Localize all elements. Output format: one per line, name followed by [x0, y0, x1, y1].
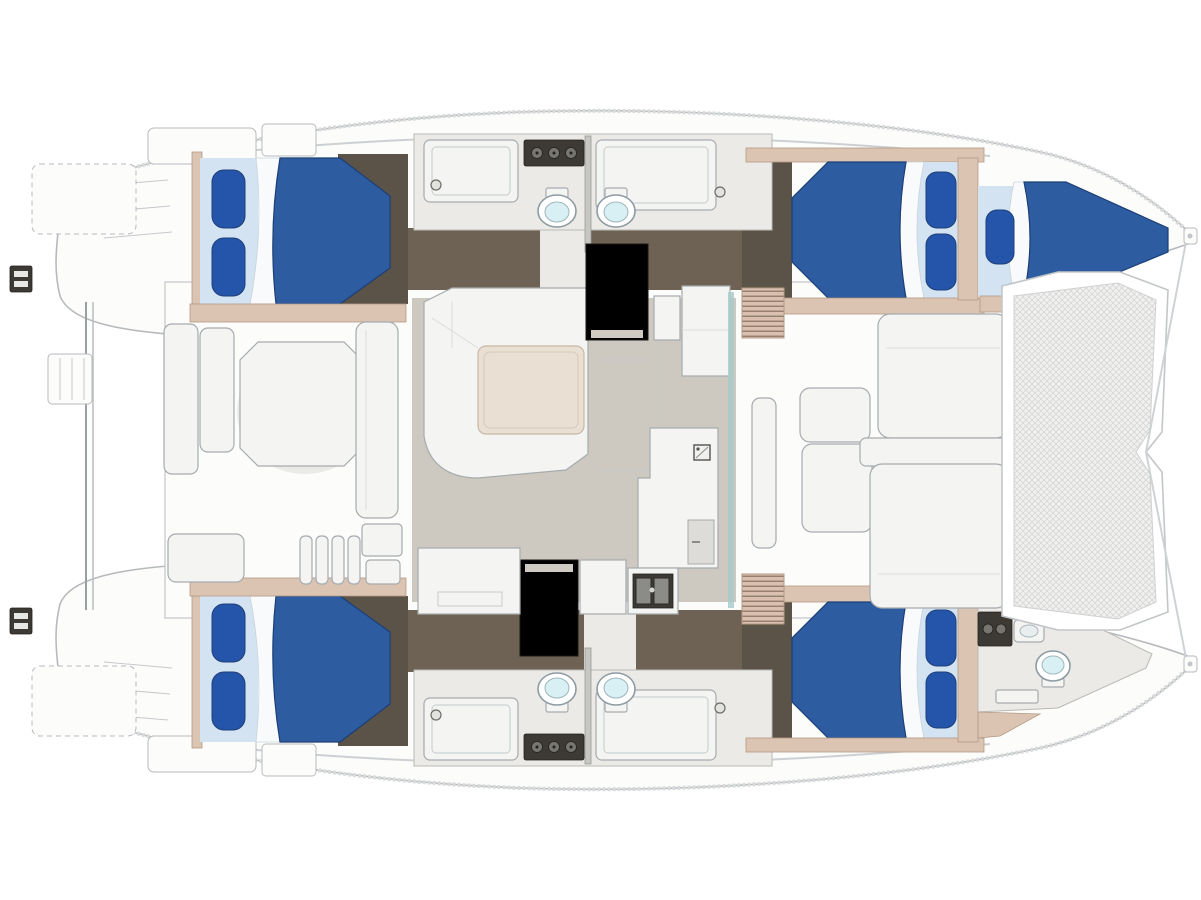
- swim-ladder: [48, 354, 92, 404]
- shower-drain: [431, 180, 441, 190]
- nav-cabinet: [682, 286, 730, 376]
- forward-seat-side: [800, 388, 870, 442]
- port-corridor-doorway: [540, 228, 586, 290]
- forward-cockpit-table: [752, 398, 776, 548]
- bow-trampoline: [1002, 228, 1197, 672]
- pillow: [926, 172, 956, 228]
- bow-fitting-port: [1184, 228, 1197, 244]
- starboard-swim-platform: [32, 666, 136, 736]
- dinette: [424, 288, 588, 478]
- starboard-hull-stairs: [520, 560, 578, 656]
- cabin-shelf: [746, 148, 984, 162]
- vanity-sinks: [524, 140, 584, 166]
- forward-side-steps-starboard: [742, 574, 784, 624]
- bow-head-shelf: [996, 690, 1038, 703]
- pillow: [212, 672, 245, 730]
- shower-drain: [431, 710, 441, 720]
- trampoline-net: [1014, 283, 1156, 619]
- galley-aft-counter: [418, 548, 520, 614]
- double-berth-spread: [792, 602, 906, 738]
- forward-bench-center: [860, 438, 1008, 466]
- galley-counter-landing: [580, 560, 626, 614]
- forward-bench-port: [878, 314, 1008, 438]
- pillow: [212, 238, 245, 296]
- pillow: [926, 672, 956, 728]
- head-divider-wall: [585, 648, 591, 764]
- starboard-corridor-doorway: [584, 610, 636, 672]
- cockpit-bench-right: [356, 322, 398, 518]
- bow-fitting-starboard: [1184, 656, 1197, 672]
- vanity-sinks: [524, 734, 584, 760]
- forepeak-bulkhead: [958, 600, 978, 742]
- salon: [412, 244, 736, 656]
- shower-aft: [424, 698, 518, 760]
- floor-plan-canvas: [0, 0, 1201, 900]
- aft-deck-box-port-2: [262, 124, 316, 156]
- pillow: [926, 234, 956, 290]
- island-sink: [694, 445, 710, 460]
- cockpit-bench-left: [164, 324, 198, 474]
- catamaran-floor-plan: [0, 0, 1201, 900]
- davit-bracket-starboard: [10, 608, 32, 634]
- pillow: [926, 610, 956, 666]
- aft-deck-box-starboard-2: [262, 744, 316, 776]
- head-divider-wall: [585, 136, 591, 252]
- forward-bench-starboard: [870, 464, 1008, 608]
- cockpit-locker: [362, 524, 402, 556]
- cabin-shelf: [190, 304, 406, 322]
- shower-drain: [715, 703, 725, 713]
- pillow: [986, 210, 1014, 264]
- cockpit-table: [240, 342, 362, 466]
- cabin-shelf: [746, 738, 984, 752]
- galley-sink-unit: [628, 568, 678, 614]
- shower-drain: [715, 187, 725, 197]
- forward-side-steps-port: [742, 288, 784, 338]
- island-fridge: [688, 520, 714, 564]
- salon-table: [478, 346, 584, 434]
- davit-bracket-port: [10, 266, 32, 292]
- port-swim-platform: [32, 164, 136, 234]
- cockpit-bench-left-2: [200, 328, 234, 452]
- double-berth-spread: [792, 162, 906, 298]
- forepeak-bulkhead: [958, 158, 978, 300]
- cockpit-bench-aft: [168, 534, 244, 582]
- cockpit-locker-2: [366, 560, 400, 584]
- forward-door-glass: [728, 292, 734, 608]
- shower-aft: [424, 140, 518, 202]
- salon-cabinet: [654, 296, 680, 340]
- pillow: [212, 604, 245, 662]
- pillow: [212, 170, 245, 228]
- port-hull-stairs: [586, 244, 648, 340]
